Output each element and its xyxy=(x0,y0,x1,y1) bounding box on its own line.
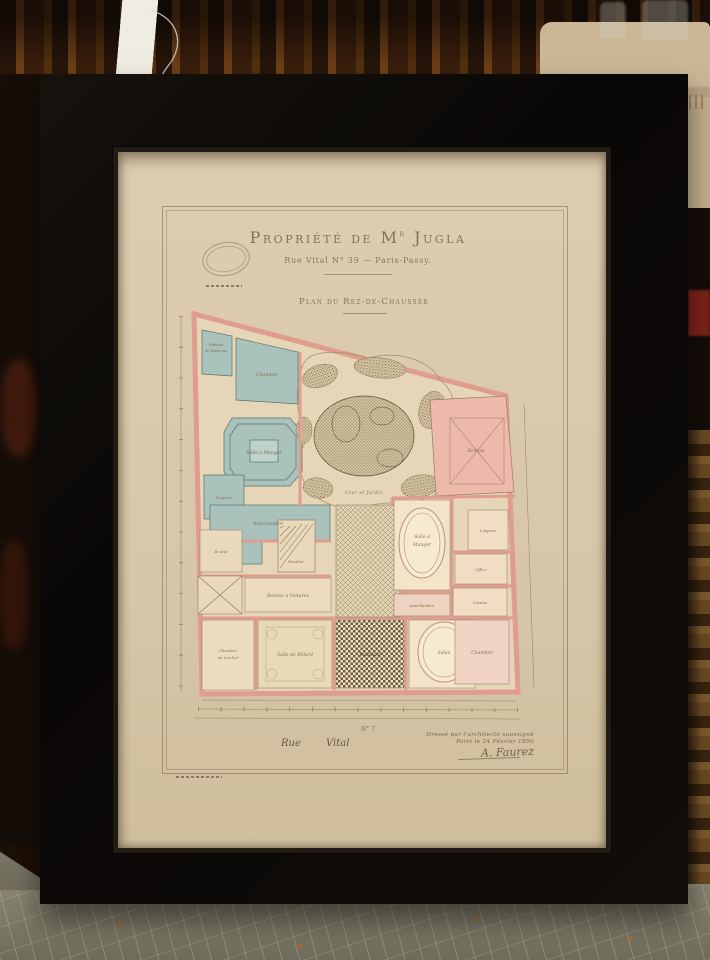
svg-text:Cabinet: Cabinet xyxy=(209,343,224,347)
svg-text:N° 7: N° 7 xyxy=(360,726,375,733)
red-fabric-glimpse xyxy=(0,540,28,650)
left-shadow-backdrop xyxy=(0,74,42,846)
svg-text:Salle à: Salle à xyxy=(414,533,430,540)
svg-text:Salle à Manger: Salle à Manger xyxy=(246,449,282,456)
red-fabric-glimpse xyxy=(2,360,36,456)
shop-photo-scene: Propriété de Mr Jugla Rue Vital N° 39 — … xyxy=(0,0,710,960)
glassware xyxy=(642,0,688,40)
stamp-caption-illegible xyxy=(206,285,242,287)
svg-text:Écurie: Écurie xyxy=(213,549,228,554)
signature-line1: Dressé par l'architecte soussigné xyxy=(406,732,534,739)
svg-text:Chambre: Chambre xyxy=(471,650,493,656)
svg-text:Cour et Jardin: Cour et Jardin xyxy=(345,490,384,495)
svg-text:Antichambre: Antichambre xyxy=(409,603,436,608)
svg-text:Office: Office xyxy=(475,567,487,572)
svg-text:de Débarras: de Débarras xyxy=(205,349,228,353)
remise-room xyxy=(430,396,514,496)
svg-text:Lingerie: Lingerie xyxy=(479,528,497,533)
svg-text:Antichambre: Antichambre xyxy=(252,521,283,527)
gilded-carved-object xyxy=(688,430,710,900)
architect-signature-block: Dressé par l'architecte soussigné Paris … xyxy=(406,732,534,760)
svg-text:Lingerie: Lingerie xyxy=(215,495,234,500)
staircase xyxy=(278,520,315,572)
svg-text:Escalier: Escalier xyxy=(287,559,304,564)
floor-plan-drawing: Cabinet de Débarras Chambre Salle à Mang… xyxy=(168,300,544,740)
svg-text:Manger: Manger xyxy=(412,542,432,548)
printer-imprint-illegible xyxy=(176,776,222,778)
svg-text:Remise à Voitures: Remise à Voitures xyxy=(266,592,310,599)
svg-text:Salon: Salon xyxy=(437,650,450,656)
svg-text:Chambre: Chambre xyxy=(256,372,278,378)
architectural-print-sheet: Propriété de Mr Jugla Rue Vital N° 39 — … xyxy=(118,152,606,848)
svg-text:Salle de Billard: Salle de Billard xyxy=(277,652,313,658)
street-label-rue: Rue xyxy=(281,738,301,749)
print-subtitle: Rue Vital N° 39 — Paris-Passy. xyxy=(208,256,508,265)
svg-text:Remise: Remise xyxy=(466,448,484,454)
svg-text:Vestibule: Vestibule xyxy=(359,652,381,658)
glassware xyxy=(600,2,626,38)
svg-text:Chambre: Chambre xyxy=(219,648,238,653)
street-label-vital: Vital xyxy=(326,738,349,749)
title-flourish xyxy=(324,274,392,275)
stone-floor xyxy=(0,842,44,890)
svg-text:Cuisine: Cuisine xyxy=(473,600,488,605)
red-fabric-glimpse xyxy=(688,290,710,336)
print-title: Propriété de Mr Jugla xyxy=(208,228,508,247)
svg-text:de Cocher: de Cocher xyxy=(218,655,240,660)
